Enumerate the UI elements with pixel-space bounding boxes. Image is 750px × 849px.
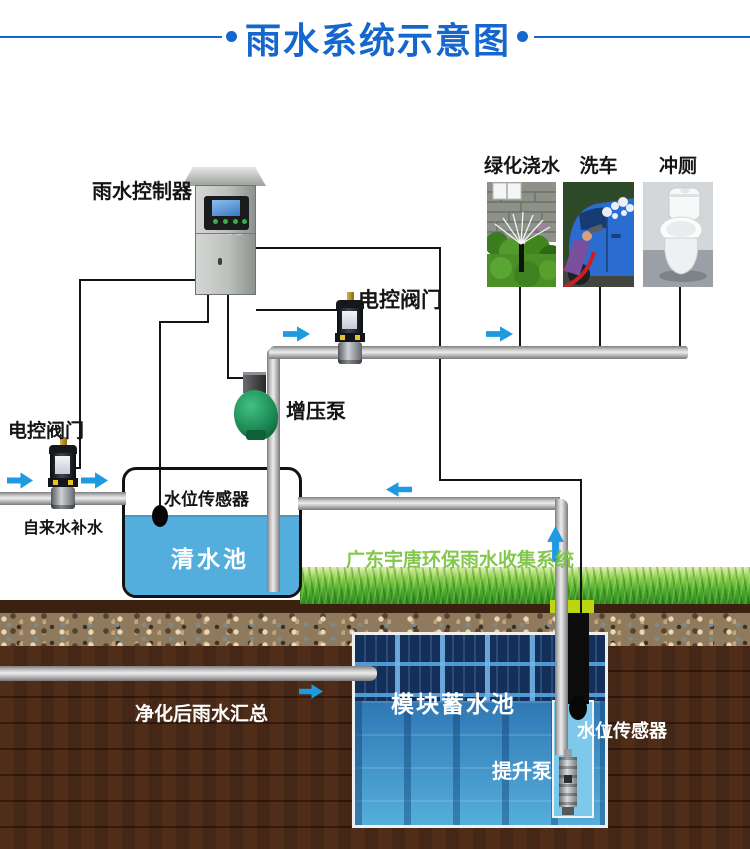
wire-to-shaft bbox=[439, 479, 582, 481]
lift-pump-window bbox=[564, 775, 572, 783]
controller-button bbox=[223, 219, 228, 224]
valve-tag bbox=[342, 311, 357, 329]
title-rule-right bbox=[534, 36, 750, 38]
flow-arrow-left-icon bbox=[386, 482, 412, 497]
cabinet-door-handle bbox=[218, 258, 222, 265]
cabinet-door-split bbox=[196, 233, 255, 236]
line-toilet bbox=[679, 287, 681, 347]
wire-sensor-a bbox=[207, 295, 209, 323]
flow-arrow-right-icon bbox=[283, 326, 310, 342]
greening-label: 绿化浇水 bbox=[477, 151, 567, 178]
inflow-pipe bbox=[0, 666, 377, 681]
wire-cabinet-right bbox=[256, 247, 441, 249]
cabinet-roof bbox=[182, 167, 266, 186]
grass-strip bbox=[300, 567, 750, 604]
valve-union bbox=[338, 342, 362, 364]
valve-actuator bbox=[50, 453, 76, 478]
controller-button bbox=[213, 219, 218, 224]
wire-pump-a bbox=[227, 295, 229, 379]
carwash-label: 洗车 bbox=[563, 151, 634, 178]
tap-water-label: 自来水补水 bbox=[23, 514, 103, 538]
valve-base bbox=[48, 478, 78, 487]
booster-pump-label: 增压泵 bbox=[286, 395, 346, 424]
lift-pump-label: 提升泵 bbox=[492, 755, 552, 784]
mid-valve-label: 电控阀门 bbox=[358, 284, 442, 314]
controller-button bbox=[233, 219, 238, 224]
module-tank-label: 模块蓄水池 bbox=[391, 685, 516, 719]
toilet-label: 冲厕 bbox=[643, 151, 713, 178]
clean-tank-label: 清水池 bbox=[171, 540, 249, 574]
lift-pump bbox=[557, 749, 579, 815]
controller-button bbox=[242, 219, 247, 224]
suction-pipe bbox=[267, 348, 280, 592]
controller-panel bbox=[204, 196, 249, 230]
controller-screen bbox=[212, 200, 240, 216]
title-dot-left bbox=[226, 31, 237, 42]
greening-image bbox=[487, 182, 556, 287]
wire-mid-drop bbox=[439, 247, 441, 481]
transfer-pipe bbox=[298, 497, 560, 510]
controller-label: 雨水控制器 bbox=[92, 175, 192, 204]
flow-arrow-right-icon bbox=[486, 326, 513, 342]
left-electric-valve bbox=[46, 437, 80, 511]
clean-level-sensor-label: 水位传感器 bbox=[164, 485, 249, 510]
lift-pump-base bbox=[562, 807, 574, 815]
valve-union bbox=[51, 487, 75, 509]
carwash-scene bbox=[563, 182, 634, 287]
wire-shaft-drop bbox=[580, 479, 582, 615]
flow-arrow-right-icon bbox=[7, 472, 33, 489]
module-level-sensor-label: 水位传感器 bbox=[577, 717, 667, 743]
left-valve-label: 电控阀门 bbox=[8, 416, 84, 443]
booster-pump bbox=[234, 390, 278, 440]
wire-cabinet-left bbox=[79, 279, 196, 281]
supply-pipe bbox=[269, 346, 688, 359]
title-rule-left bbox=[0, 36, 222, 38]
page-title: 雨水系统示意图 bbox=[240, 12, 516, 64]
sprinkler-scene bbox=[487, 182, 556, 287]
title-dot-right bbox=[517, 31, 528, 42]
valve-base bbox=[335, 333, 365, 342]
inflow-label: 净化后雨水汇总 bbox=[135, 699, 268, 726]
flow-arrow-right-icon bbox=[81, 472, 108, 489]
rain-controller-cabinet bbox=[195, 185, 256, 295]
carwash-image bbox=[563, 182, 634, 287]
line-carwash bbox=[599, 287, 601, 347]
line-greening bbox=[519, 287, 521, 347]
brand-text: 广东宇唐环保雨水收集系统 bbox=[346, 545, 574, 572]
wire-sensor-b bbox=[160, 321, 209, 323]
rainwater-system-diagram: 水位传感器 清水池 bbox=[0, 0, 750, 849]
toilet-image bbox=[643, 182, 713, 287]
wire-sensor-c bbox=[159, 321, 161, 511]
valve-tag bbox=[55, 456, 70, 474]
toilet-scene bbox=[643, 182, 713, 287]
